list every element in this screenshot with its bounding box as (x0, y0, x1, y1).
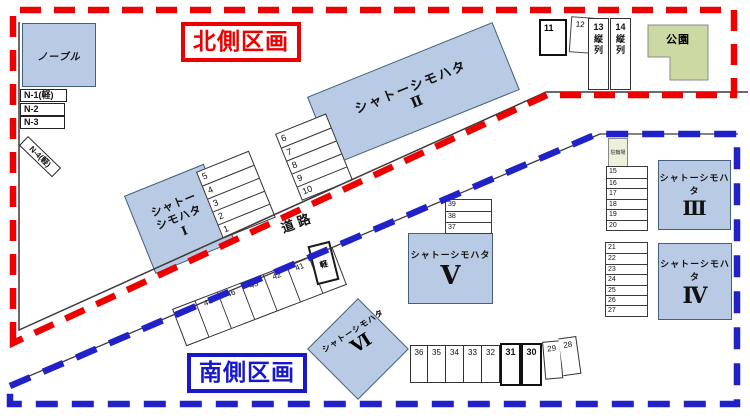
space-row-36-28: 36 35 34 33 32 31 30 29 28 (410, 345, 580, 388)
space-27: 27 (606, 305, 647, 315)
space-37: 37 (446, 222, 491, 233)
space-column-21-27: 21 22 23 24 25 26 27 (605, 242, 648, 317)
space-14-tandem-label: 縦列 (615, 34, 626, 57)
space-33: 33 (464, 345, 482, 383)
north-section-title: 北側区画 (181, 22, 301, 62)
space-25: 25 (606, 285, 647, 295)
space-19: 19 (607, 209, 647, 220)
space-22: 22 (606, 253, 647, 263)
space-n2: N-2 (20, 103, 65, 116)
space-column-15-20: 15 16 17 18 19 20 (606, 166, 648, 231)
space-36: 36 (410, 345, 428, 383)
space-38: 38 (446, 211, 491, 222)
building-chateau-4: シャトーシモハタ Ⅳ (658, 243, 732, 320)
space-14-tandem: 14 縦列 (610, 18, 631, 90)
south-section-title: 南側区画 (187, 353, 307, 393)
space-14-number: 14 (611, 22, 630, 32)
parking-map: 公園 ノーブル シャトーシモハタ Ⅱ シャトー シモハタ Ⅰ シャトーシモハタ … (0, 0, 750, 419)
building-chateau-5: シャトーシモハタ Ⅴ (408, 233, 493, 304)
space-n1: N-1(軽) (20, 89, 67, 102)
building-chateau-1-numeral: Ⅰ (179, 223, 190, 239)
building-chateau-3: シャトーシモハタ Ⅲ (658, 160, 731, 230)
space-13-number: 13 (589, 22, 608, 32)
space-20: 20 (607, 220, 647, 231)
space-35: 35 (428, 345, 446, 383)
building-chateau-4-name: シャトーシモハタ (659, 257, 731, 283)
space-34: 34 (446, 345, 464, 383)
space-24: 24 (606, 274, 647, 284)
space-11: 11 (539, 19, 567, 56)
space-column-39-37: 39 38 37 (445, 199, 492, 234)
space-17: 17 (607, 188, 647, 199)
building-chateau-5-name: シャトーシモハタ (411, 248, 491, 261)
space-39: 39 (446, 200, 491, 211)
bicycle-shed: 駐輪場 (608, 138, 628, 167)
space-32: 32 (482, 345, 500, 383)
space-18: 18 (607, 199, 647, 210)
space-31: 31 (500, 343, 521, 386)
space-13-tandem: 13 縦列 (588, 18, 609, 90)
space-30: 30 (521, 343, 542, 386)
building-chateau-3-name: シャトーシモハタ (659, 171, 730, 197)
building-noble: ノーブル (22, 23, 96, 87)
space-23: 23 (606, 264, 647, 274)
space-21: 21 (606, 243, 647, 253)
space-26: 26 (606, 295, 647, 305)
space-13-tandem-label: 縦列 (593, 34, 604, 57)
building-noble-label: ノーブル (37, 48, 80, 63)
space-16: 16 (607, 178, 647, 189)
building-chateau-2-numeral: Ⅱ (408, 92, 425, 112)
space-15: 15 (607, 167, 647, 178)
building-chateau-5-numeral: Ⅴ (440, 263, 460, 289)
space-n3: N-3 (20, 116, 65, 129)
building-chateau-4-numeral: Ⅳ (683, 285, 708, 307)
building-chateau-3-numeral: Ⅲ (682, 199, 706, 219)
park-label: 公園 (648, 31, 708, 47)
